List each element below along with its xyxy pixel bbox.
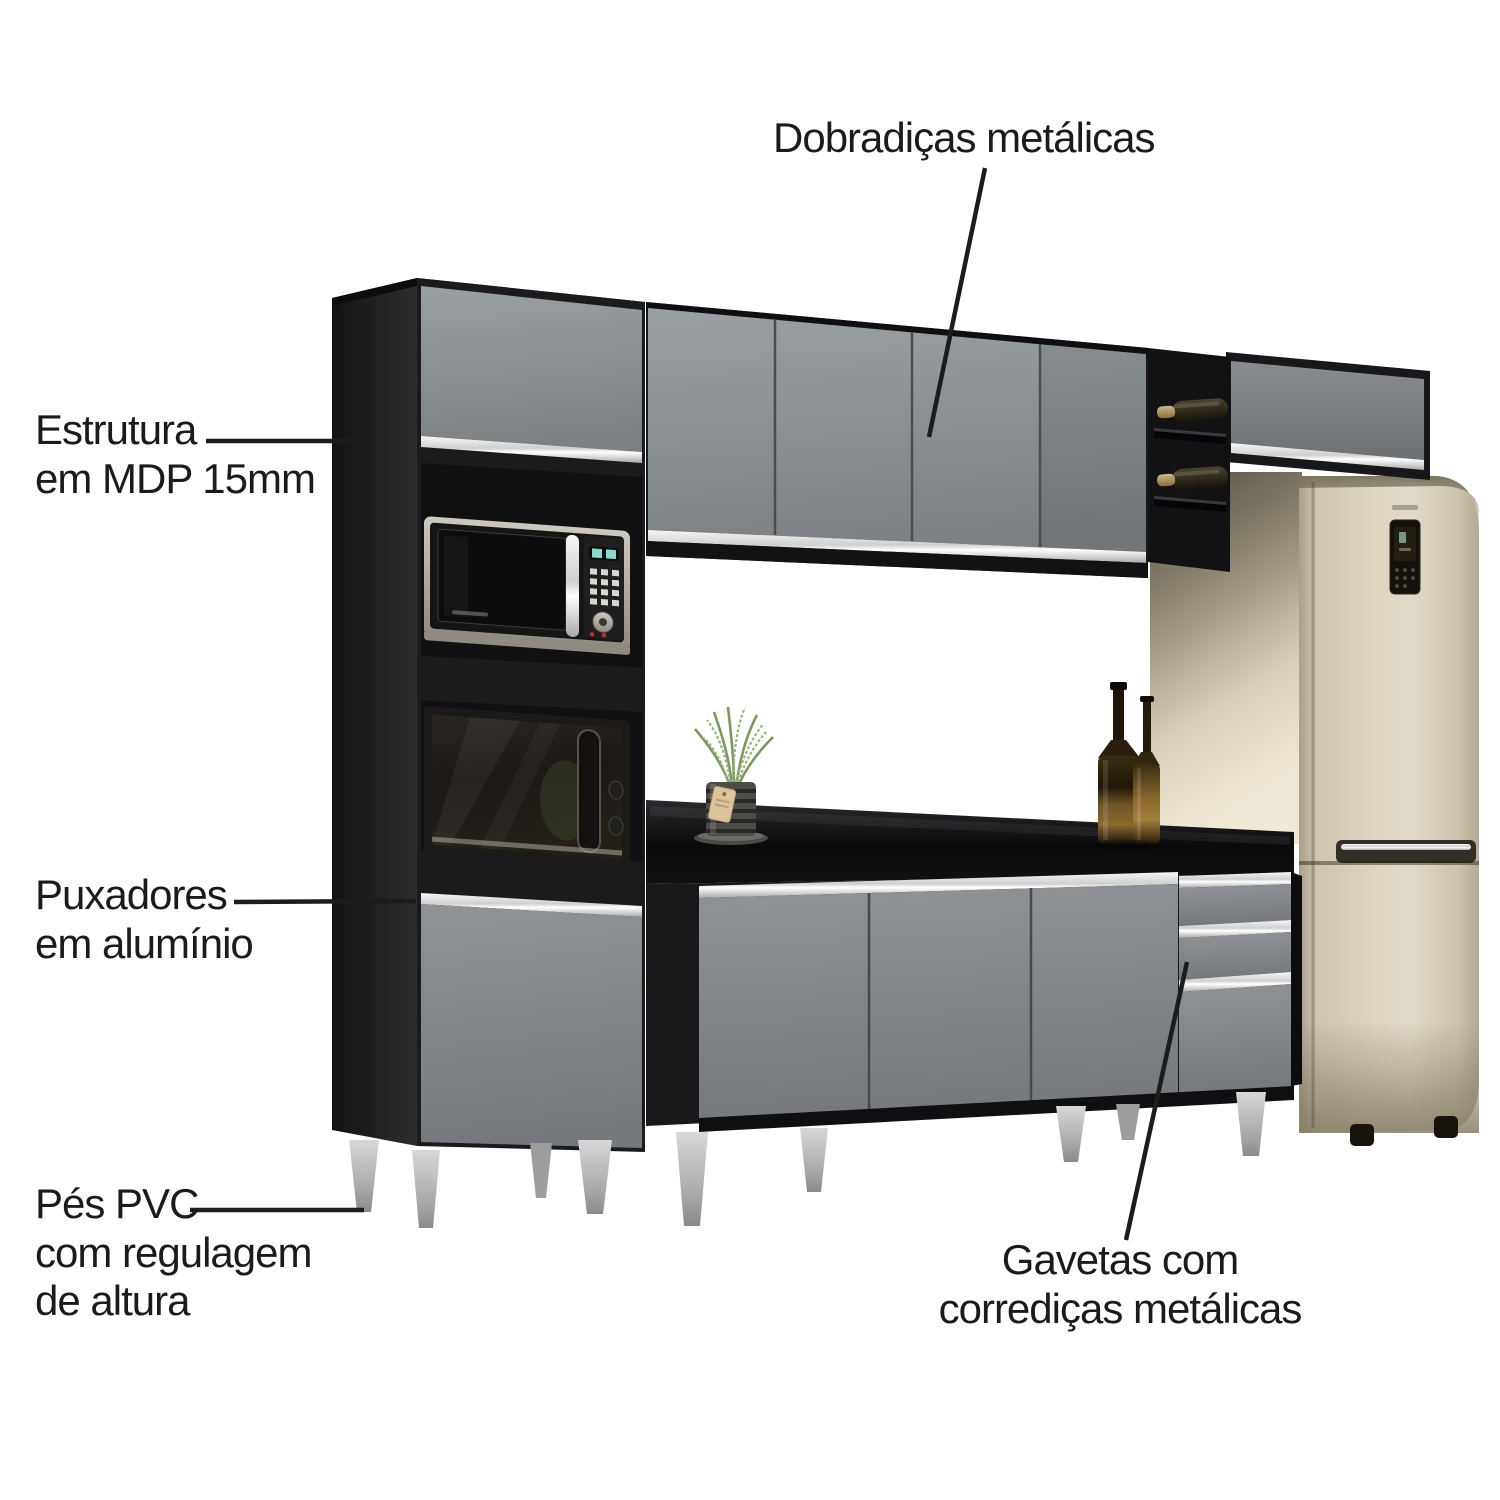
pvc-foot	[1236, 1092, 1266, 1156]
annotation-structure-line1: Estrutura	[35, 406, 315, 455]
annotation-structure-line2: em MDP 15mm	[35, 455, 315, 504]
tall-cabinet	[332, 278, 645, 1228]
annotation-handles: Puxadores em alumínio	[35, 871, 253, 968]
fridge-foot	[1434, 1116, 1458, 1138]
tall-cabinet-lower-door	[421, 904, 642, 1148]
annotated-kitchen-product-image: Dobradiças metálicas Estrutura em MDP 15…	[0, 0, 1500, 1500]
pvc-foot	[349, 1140, 379, 1212]
pvc-foot	[412, 1150, 440, 1228]
pvc-foot	[530, 1143, 552, 1198]
annotation-drawers-line2: corrediças metálicas	[900, 1285, 1340, 1334]
pvc-foot	[676, 1132, 708, 1226]
annotation-feet-line2: com regulagem	[35, 1229, 311, 1278]
annotation-structure: Estrutura em MDP 15mm	[35, 406, 315, 503]
oven-knob	[609, 817, 623, 836]
wall-cabinets	[646, 302, 1148, 578]
annotation-handles-line1: Puxadores	[35, 871, 253, 920]
leader-line-handles	[234, 901, 416, 902]
tall-cabinet-feet	[349, 1140, 612, 1228]
annotation-drawers-line1: Gavetas com	[900, 1236, 1340, 1285]
drawer	[1179, 884, 1291, 926]
pvc-foot	[1056, 1106, 1086, 1162]
drawer	[1179, 984, 1291, 1096]
pvc-foot	[800, 1128, 828, 1192]
counter-base-unit	[646, 800, 1302, 1226]
oven-knob	[609, 781, 623, 800]
annotation-hinges: Dobradiças metálicas	[773, 114, 1155, 163]
tall-cabinet-top-door	[421, 286, 642, 452]
tall-cabinet-side-panel	[332, 278, 417, 1146]
annotation-handles-line2: em alumínio	[35, 920, 253, 969]
drawer	[1179, 932, 1291, 980]
fridge-foot	[1350, 1124, 1374, 1146]
fridge-brand-mark	[1392, 505, 1418, 510]
annotation-feet-line3: de altura	[35, 1277, 311, 1326]
oven-handle	[578, 729, 600, 853]
pvc-foot	[1116, 1104, 1140, 1140]
wine-rack	[1148, 348, 1230, 572]
pvc-foot	[578, 1140, 612, 1214]
fridge-control-panel	[1390, 520, 1420, 594]
base-cabinet-doors	[699, 884, 1178, 1122]
over-fridge-cabinet	[1226, 352, 1430, 480]
annotation-hinges-text: Dobradiças metálicas	[773, 114, 1155, 161]
annotation-feet: Pés PVC com regulagem de altura	[35, 1180, 311, 1326]
drawer-stack	[1179, 872, 1302, 1096]
microwave	[424, 516, 630, 655]
microwave-handle	[566, 534, 579, 637]
annotation-drawers: Gavetas com corrediças metálicas	[900, 1236, 1340, 1333]
annotation-feet-line1: Pés PVC	[35, 1180, 311, 1229]
oven	[424, 706, 630, 867]
